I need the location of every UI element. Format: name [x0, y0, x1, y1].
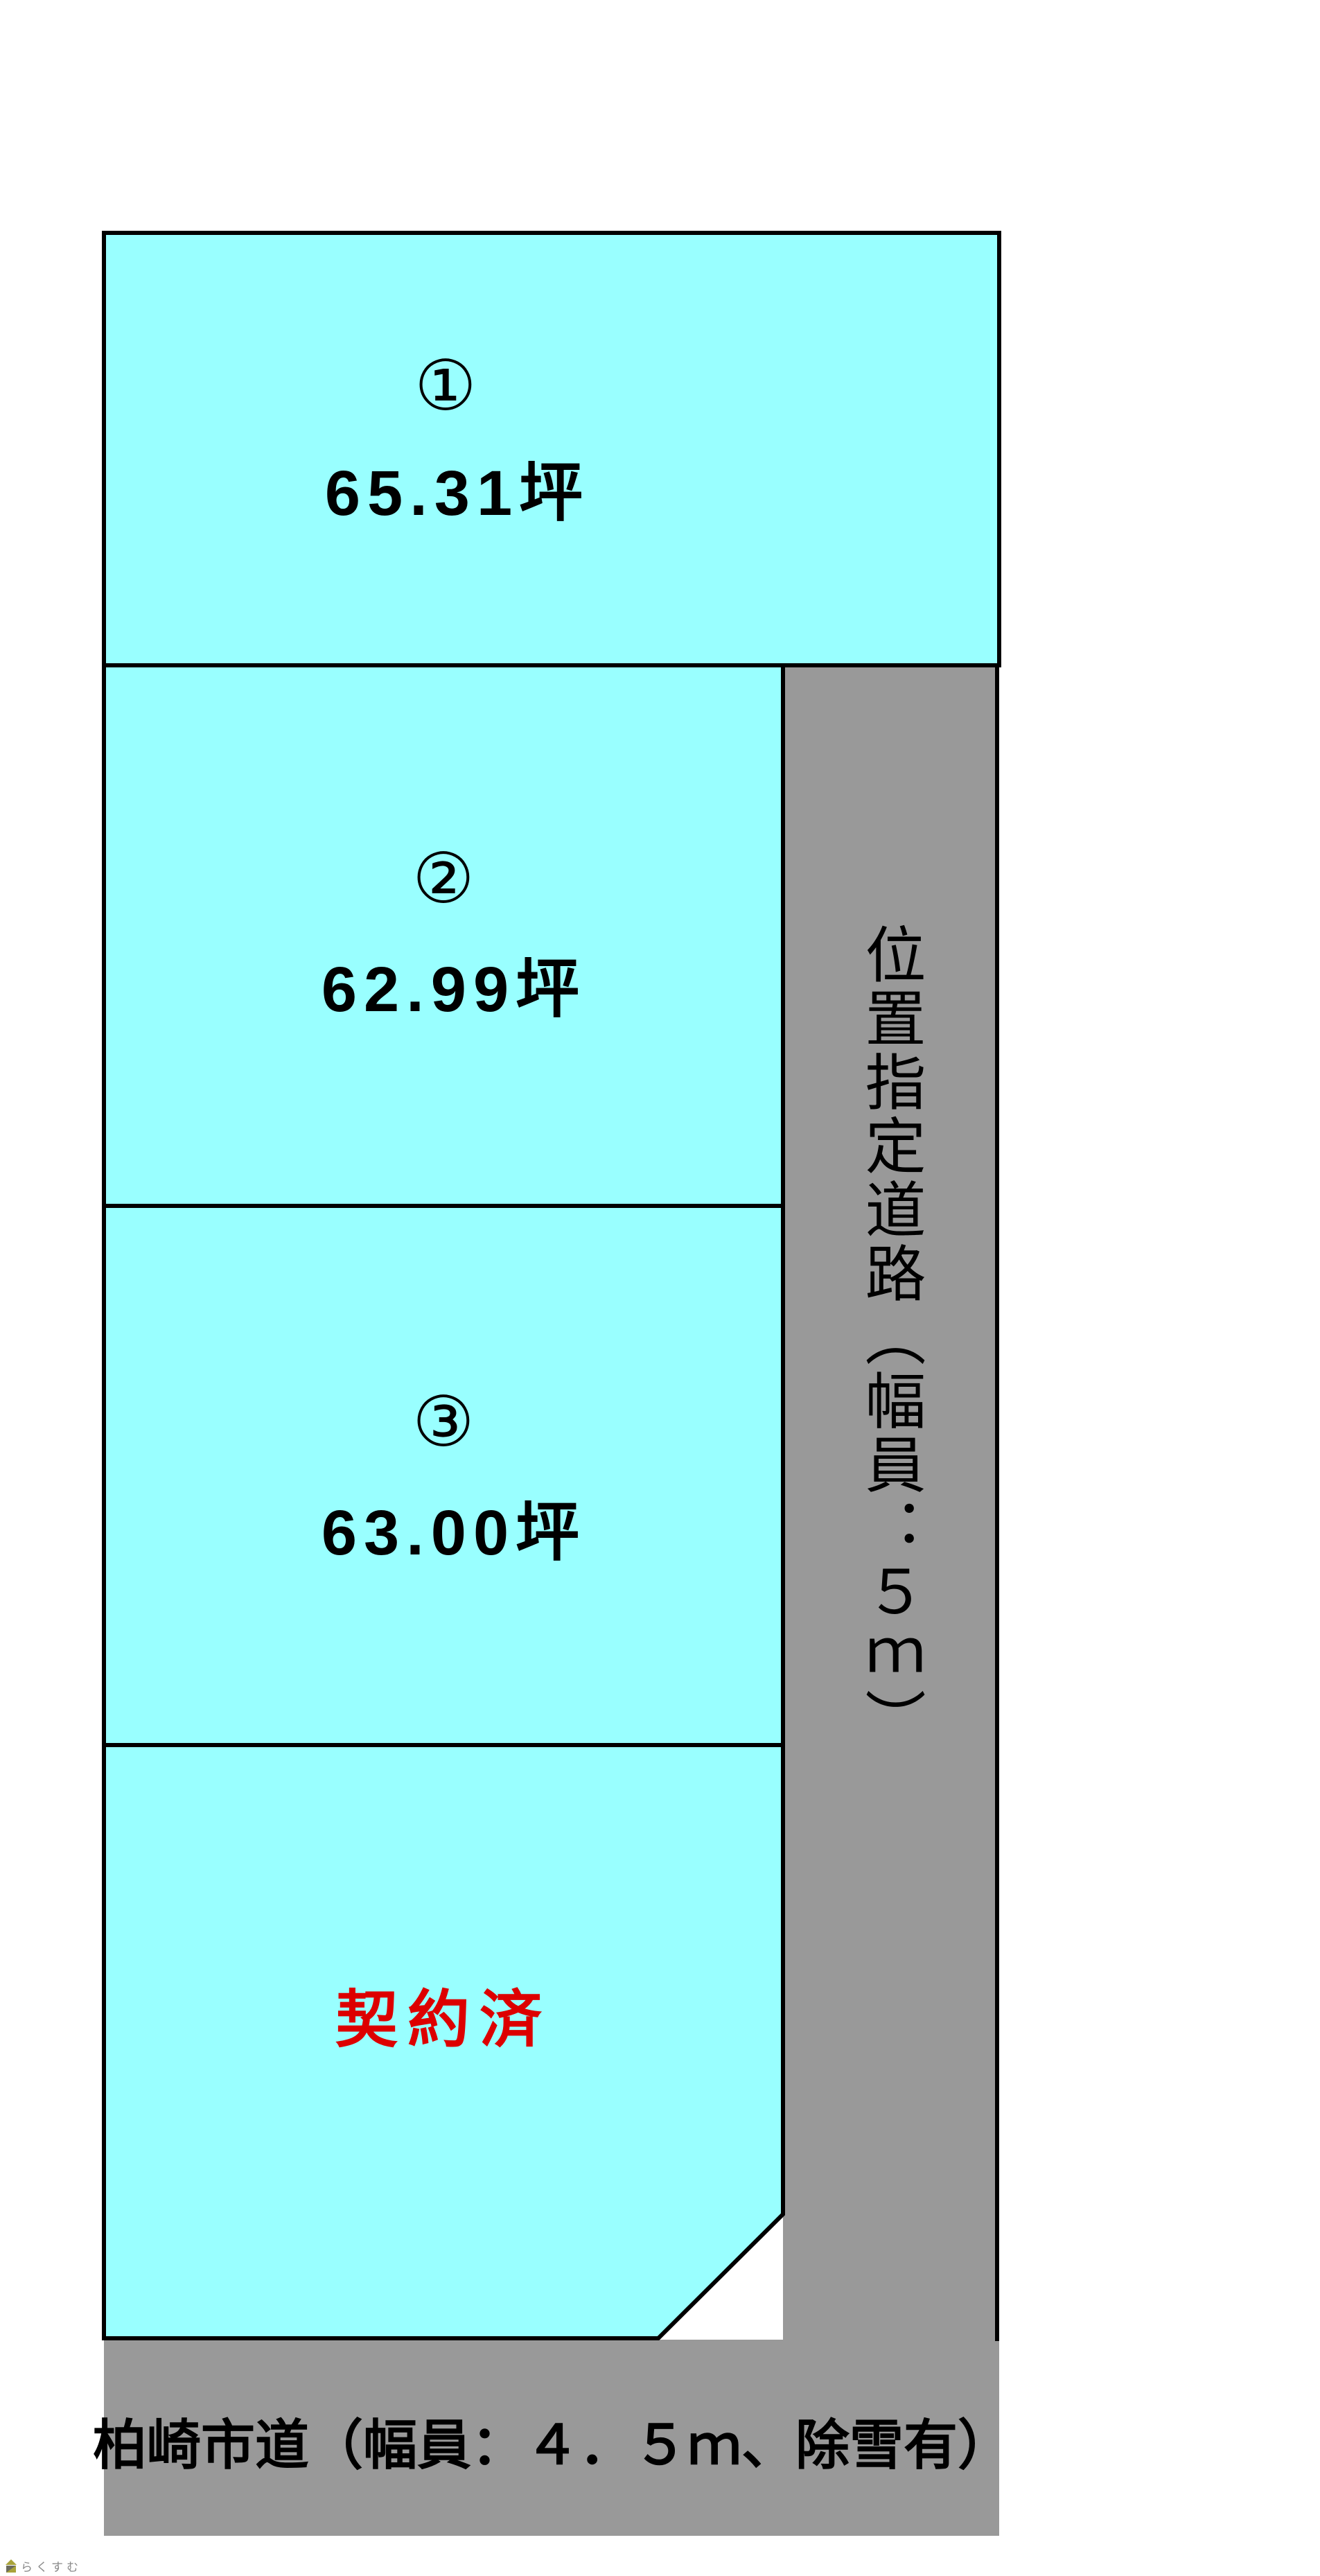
site-plan-drawing: [0, 0, 1320, 2576]
lot-1-parcel: [104, 233, 999, 665]
lot-2-parcel: [104, 665, 783, 1206]
watermark: らくすむ: [6, 2557, 82, 2575]
lot-3-parcel: [104, 1206, 783, 1745]
lot-1-number: ①: [414, 351, 477, 421]
side-road-label: 位置指定道路（幅員：５ｍ）: [860, 923, 921, 1752]
lot-3-area: 63.00坪: [322, 1501, 586, 1565]
lot-1-area: 65.31坪: [325, 462, 590, 525]
rakusumu-house-icon: [6, 2559, 17, 2573]
lot-2-number: ②: [412, 844, 475, 913]
lot-layout-diagram: ① 65.31坪 ② 62.99坪 ③ 63.00坪 契約済 位置指定道路（幅員…: [0, 0, 1320, 2576]
lot-4-sold-status: 契約済: [335, 1989, 552, 2051]
bottom-road-label: 柏崎市道（幅員：４．５ｍ、除雪有）: [93, 2418, 1012, 2472]
lot-3-number: ③: [412, 1387, 475, 1457]
watermark-text: らくすむ: [21, 2557, 82, 2575]
lot-2-area: 62.99坪: [322, 958, 586, 1022]
